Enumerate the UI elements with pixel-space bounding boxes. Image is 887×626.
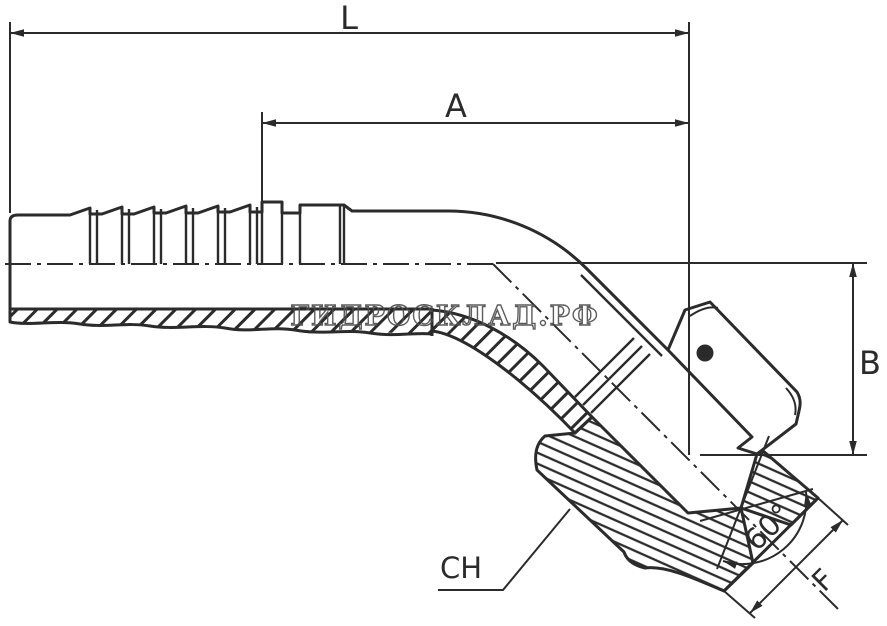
thread-tick-lines bbox=[575, 338, 650, 413]
dim-a-label: A bbox=[445, 87, 467, 125]
dimension-A: A bbox=[262, 87, 689, 202]
dim-l-label: L bbox=[340, 0, 358, 37]
barb-edge-lines bbox=[90, 202, 344, 264]
ch-callout: CH bbox=[438, 509, 570, 590]
hex-nut-face bbox=[668, 302, 800, 454]
ext-line-f-upper bbox=[818, 498, 848, 525]
dim-f-label: F bbox=[805, 562, 841, 598]
ext-line-f-lower bbox=[724, 591, 755, 618]
fitting-drawing-canvas: L A B 60° F CH ГИДРОСКЛАД.РФ bbox=[0, 0, 887, 626]
hex-nut bbox=[668, 302, 800, 454]
nut-face-dot bbox=[697, 345, 714, 362]
nut-lower-section bbox=[536, 417, 753, 591]
dimension-L: L bbox=[10, 0, 689, 455]
watermark-text: ГИДРОСКЛАД.РФ bbox=[290, 301, 599, 332]
ch-label: CH bbox=[440, 551, 482, 585]
technical-drawing: L A B 60° F CH ГИДРОСКЛАД.РФ bbox=[0, 0, 887, 626]
dim-b-label: B bbox=[859, 344, 881, 382]
